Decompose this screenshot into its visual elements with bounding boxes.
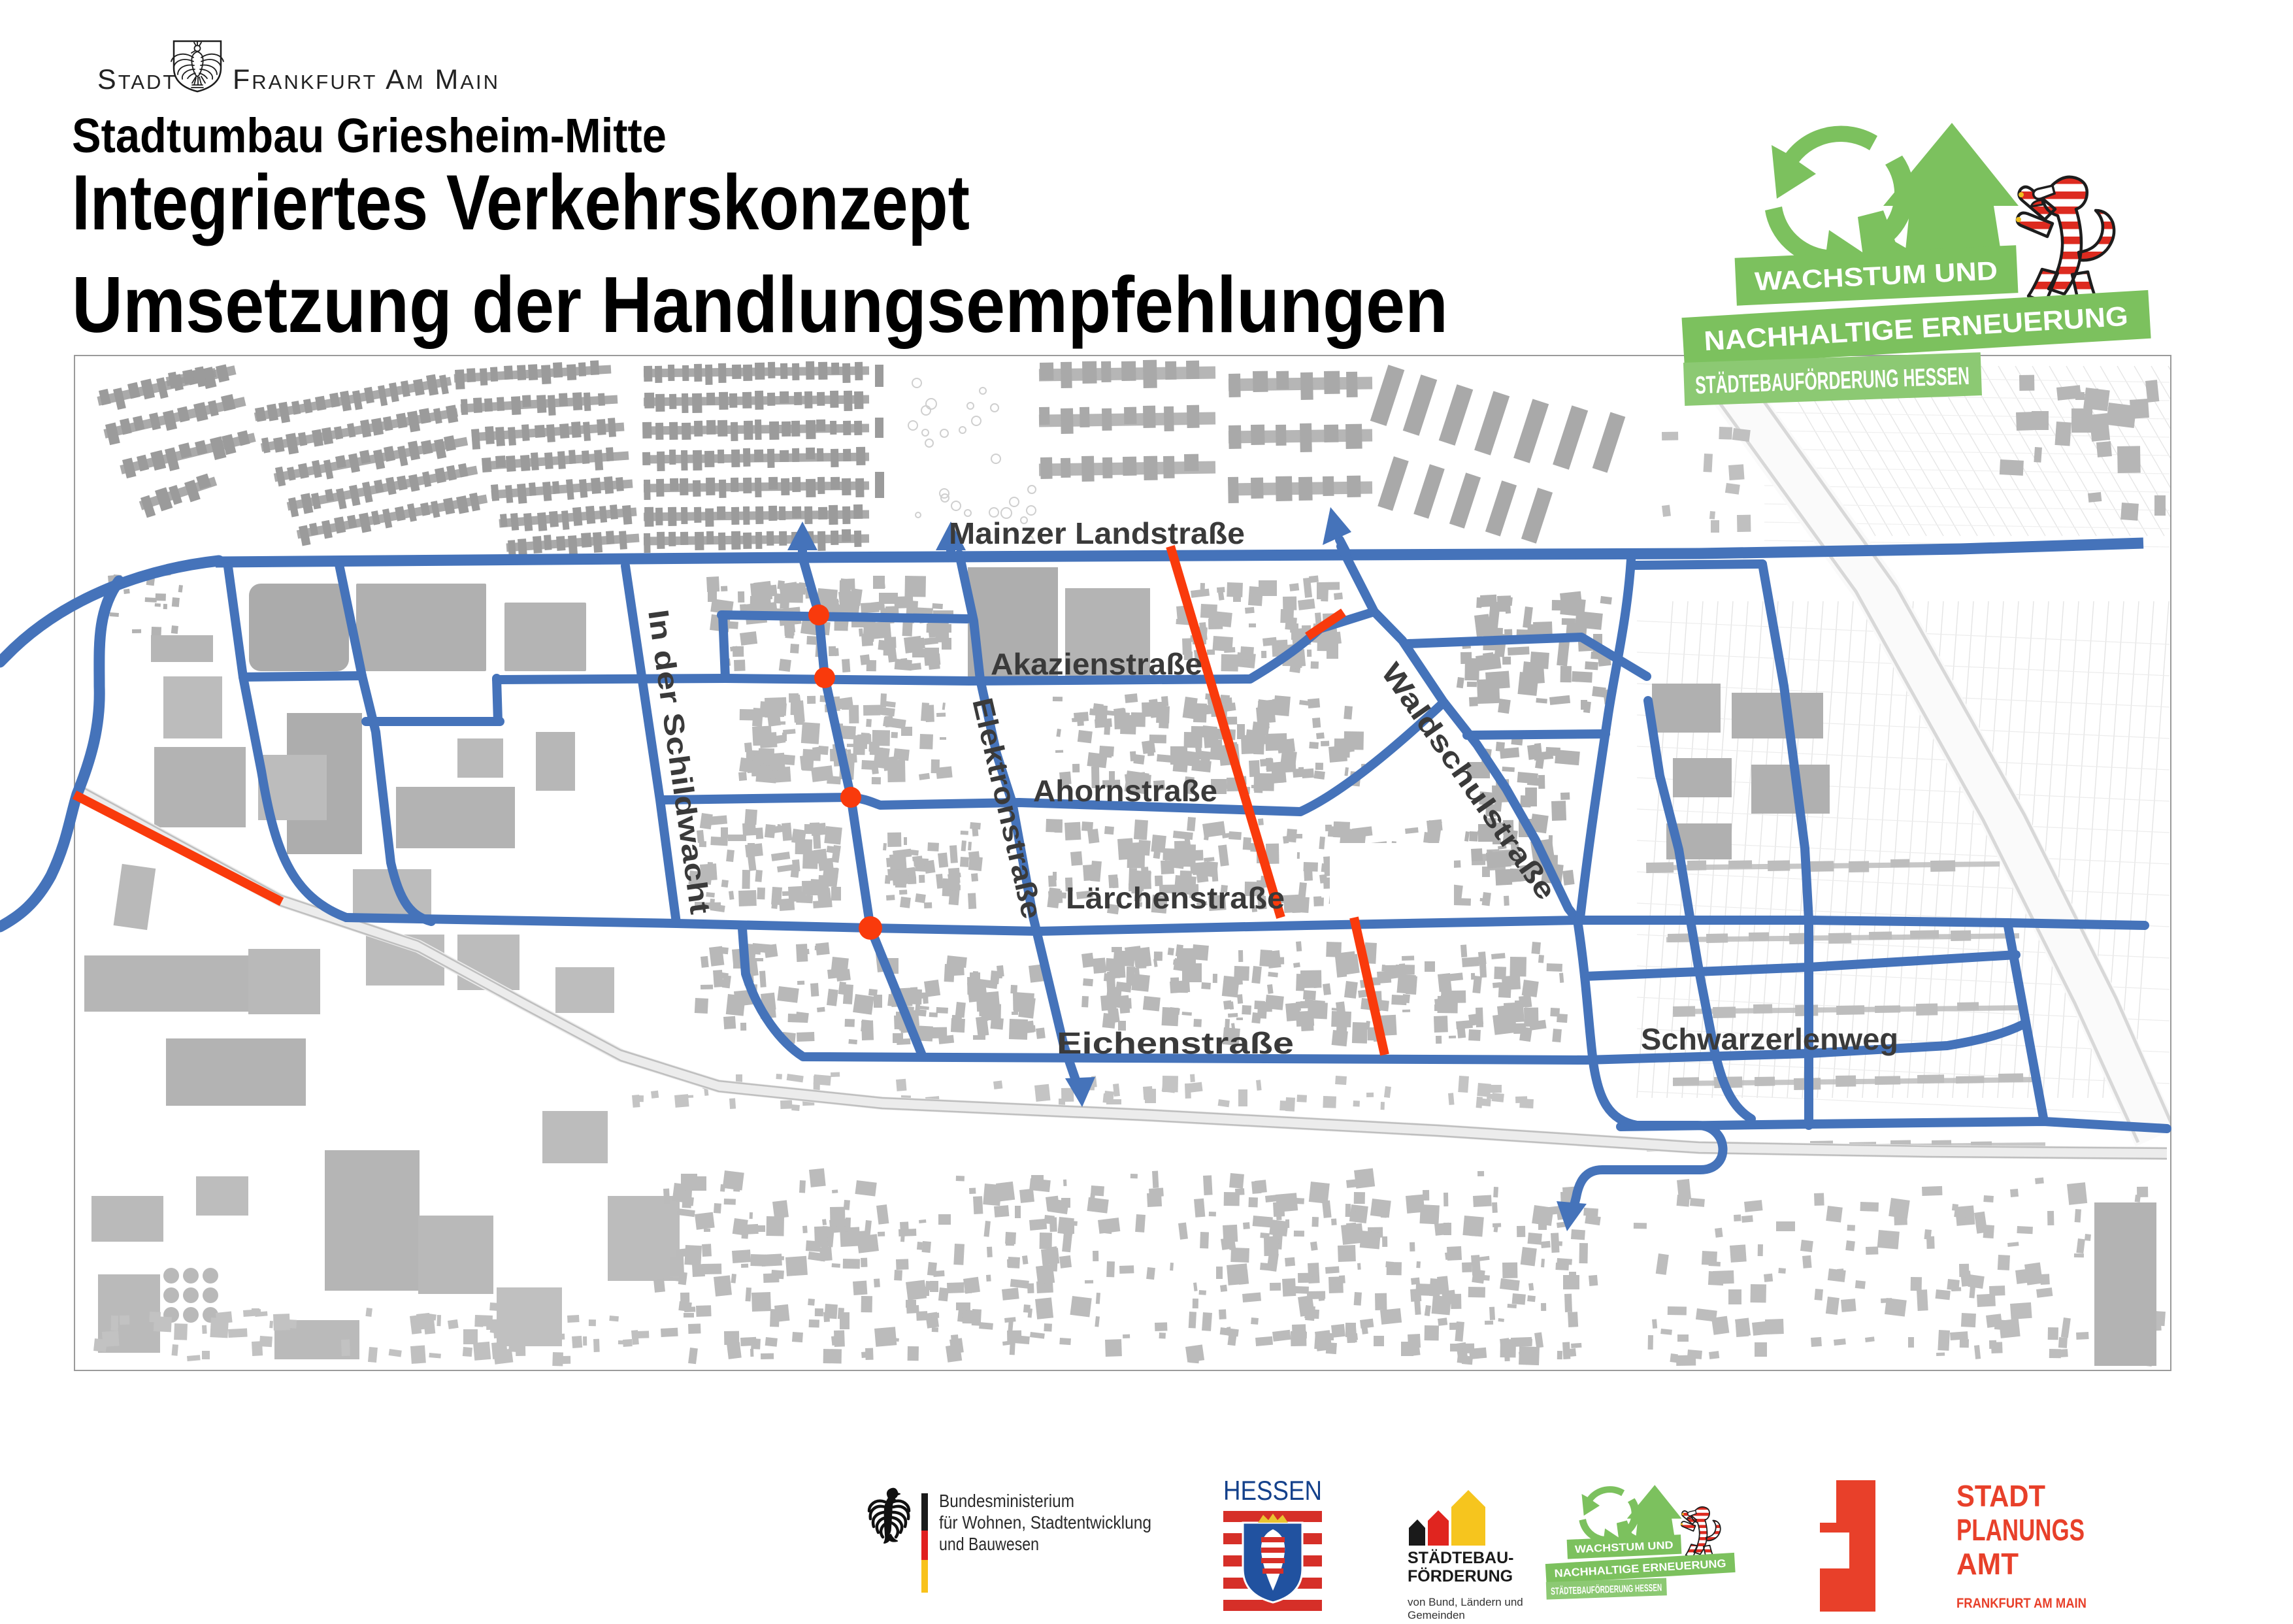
- svg-text:Eichenstraße: Eichenstraße: [1057, 1026, 1294, 1060]
- svg-text:Stadtumbau Griesheim-Mitte: Stadtumbau Griesheim-Mitte: [72, 108, 667, 163]
- svg-text:Ahornstraße: Ahornstraße: [1033, 774, 1217, 808]
- svg-text:Integriertes Verkehrskonzept: Integriertes Verkehrskonzept: [72, 159, 970, 246]
- svg-text:Gemeinden: Gemeinden: [1408, 1609, 1465, 1621]
- svg-text:Mainzer Landstraße: Mainzer Landstraße: [949, 516, 1245, 550]
- svg-text:von Bund, Ländern und: von Bund, Ländern und: [1408, 1596, 1523, 1608]
- svg-text:AMT: AMT: [1956, 1547, 2019, 1581]
- svg-text:Bundesministerium: Bundesministerium: [939, 1491, 1074, 1511]
- svg-text:Lärchenstraße: Lärchenstraße: [1066, 881, 1285, 915]
- svg-text:Schwarzerlenweg: Schwarzerlenweg: [1641, 1022, 1898, 1056]
- svg-text:STADT: STADT: [1956, 1479, 2045, 1513]
- svg-text:für Wohnen, Stadtentwicklung: für Wohnen, Stadtentwicklung: [939, 1512, 1151, 1533]
- svg-text:FRANKFURT AM MAIN: FRANKFURT AM MAIN: [1956, 1596, 2087, 1611]
- svg-text:Umsetzung der Handlungsempfehl: Umsetzung der Handlungsempfehlungen: [72, 260, 1448, 349]
- svg-text:FÖRDERUNG: FÖRDERUNG: [1408, 1566, 1513, 1585]
- svg-text:Akazienstraße: Akazienstraße: [991, 647, 1202, 681]
- svg-text:STÄDTEBAU-: STÄDTEBAU-: [1408, 1549, 1514, 1567]
- svg-text:PLANUNGS: PLANUNGS: [1956, 1513, 2085, 1547]
- svg-text:und Bauwesen: und Bauwesen: [939, 1534, 1039, 1554]
- svg-text:HESSEN: HESSEN: [1223, 1475, 1322, 1506]
